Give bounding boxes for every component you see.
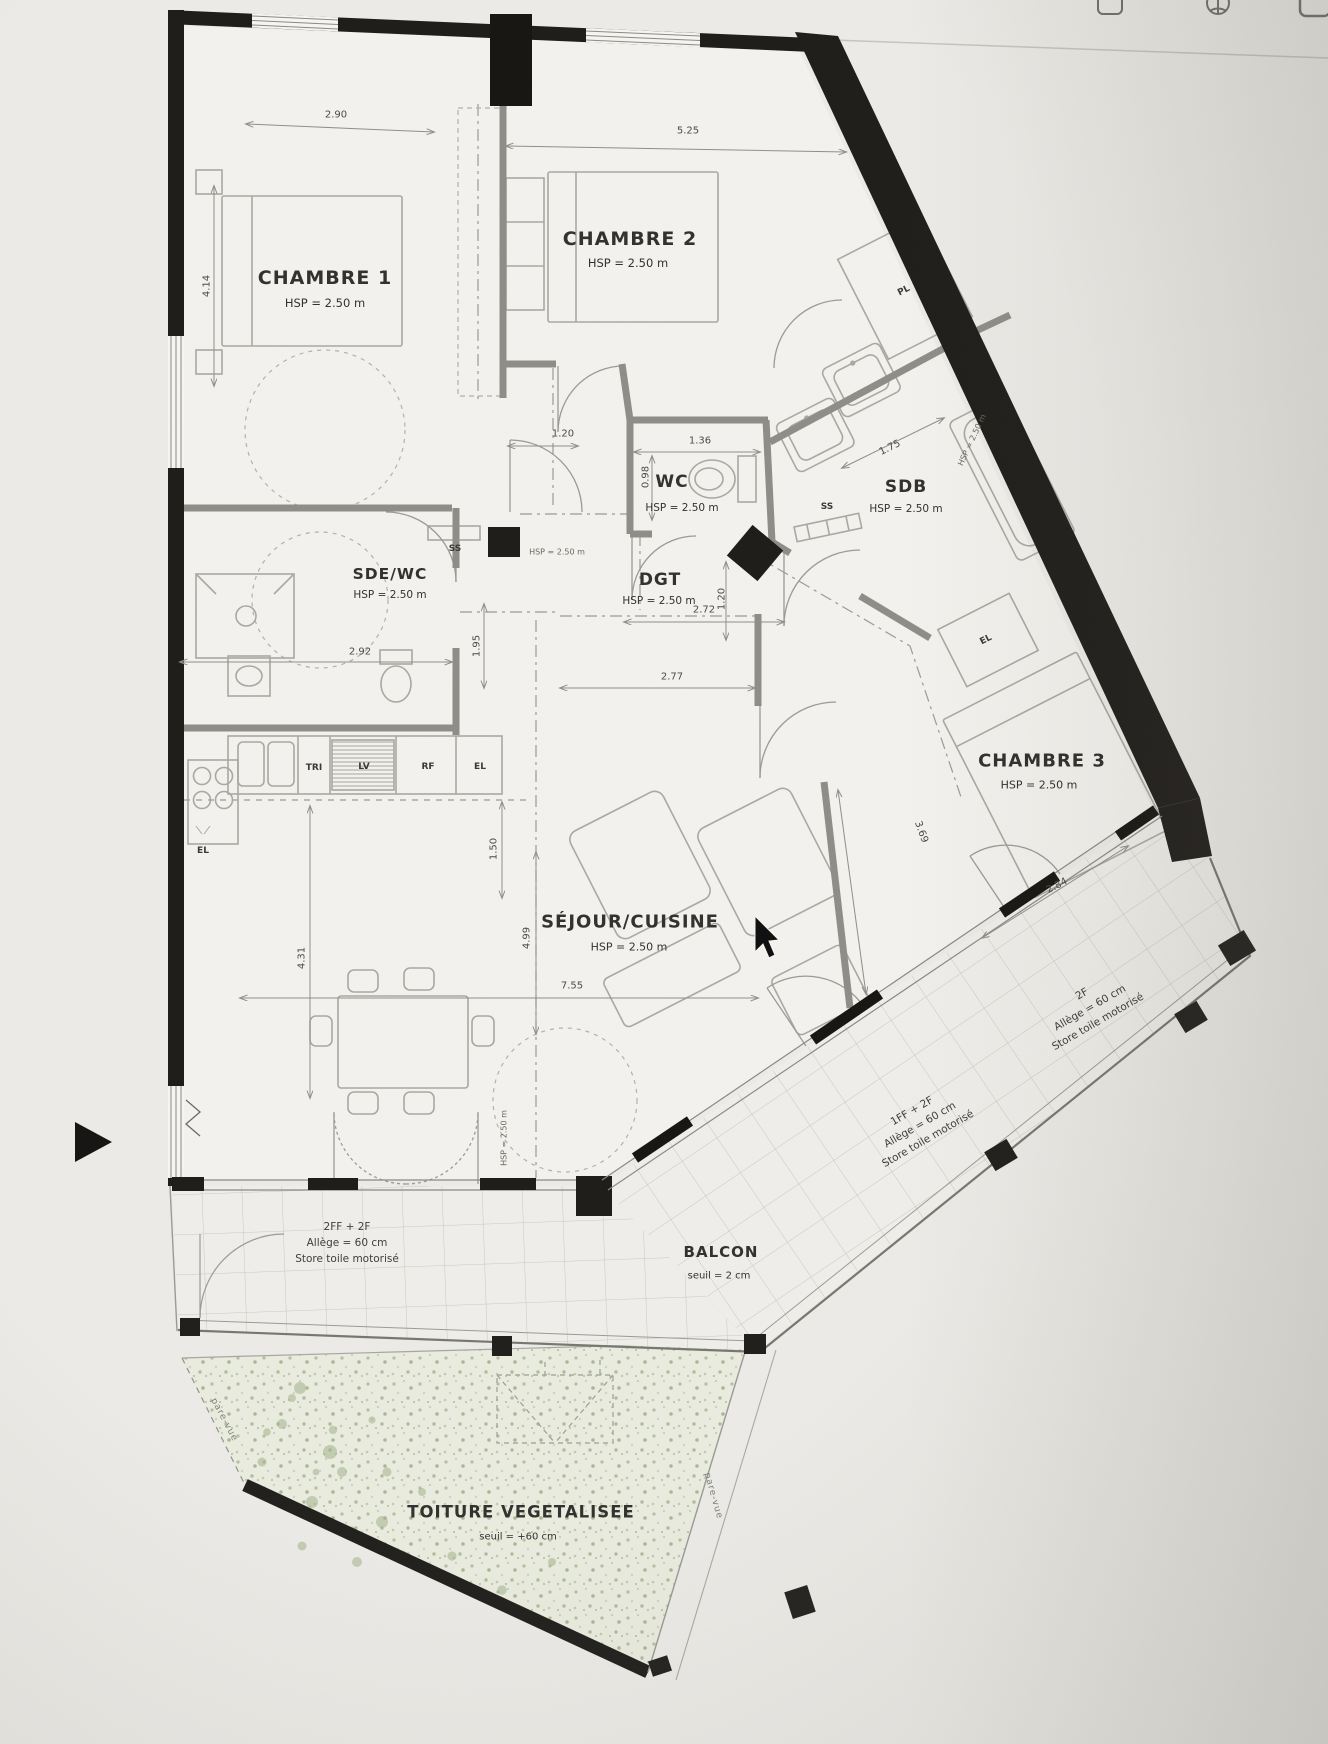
- room-label-sejour: SÉJOUR/CUISINE: [541, 912, 719, 933]
- sde-ss-label: SS: [449, 544, 462, 554]
- room-hsp-dgt: HSP = 2.50 m: [622, 595, 695, 607]
- dim-dgt-width: 2.72: [693, 605, 715, 616]
- kitchen-rf-label: RF: [421, 762, 434, 772]
- dim-sde-width: 2.92: [349, 647, 371, 658]
- floorplan-photo: CHAMBRE 1 HSP = 2.50 m CHAMBRE 2 HSP = 2…: [0, 0, 1328, 1744]
- dim-sejour-left: 4.31: [297, 947, 308, 969]
- room-hsp-sejour: HSP = 2.50 m: [591, 941, 668, 954]
- kitchen-lv-label: LV: [358, 762, 369, 772]
- window-note-south-line1: 2FF + 2F: [295, 1219, 399, 1235]
- dim-wc-width: 1.36: [689, 436, 711, 447]
- room-hsp-chambre2: HSP = 2.50 m: [588, 256, 668, 270]
- window-note-south: 2FF + 2F Allège = 60 cm Store toile moto…: [295, 1219, 399, 1267]
- cooktop-el-label: EL: [197, 846, 209, 856]
- room-label-balcon: BALCON: [684, 1243, 759, 1261]
- dim-dgt-depth: 1.20: [717, 588, 728, 610]
- dim-chambre1-height: 4.14: [202, 275, 213, 297]
- dim-wc-depth: 0.98: [641, 466, 652, 488]
- sdb-ss-label: SS: [821, 502, 834, 512]
- window-note-south-line3: Store toile motorisé: [295, 1251, 399, 1267]
- room-label-toiture: TOITURE VEGETALISEE: [407, 1503, 634, 1522]
- dim-sejour-width: 7.55: [561, 981, 583, 992]
- dim-sde-door: 1.95: [472, 635, 483, 657]
- room-hsp-chambre1: HSP = 2.50 m: [285, 296, 365, 310]
- room-hsp-sde-wc: HSP = 2.50 m: [353, 589, 426, 601]
- kitchen-tri-label: TRI: [306, 763, 322, 773]
- room-label-chambre1: CHAMBRE 1: [258, 267, 392, 289]
- kitchen-el-label: EL: [474, 762, 486, 772]
- dim-kitchen-depth: 1.50: [489, 838, 500, 860]
- room-label-chambre2: CHAMBRE 2: [563, 228, 697, 250]
- room-label-chambre3: CHAMBRE 3: [978, 751, 1106, 772]
- dim-chambre2-width: 5.25: [677, 126, 699, 137]
- room-label-wc: WC: [655, 472, 688, 492]
- dim-sejour-opening: 2.77: [661, 672, 683, 683]
- room-label-sdb: SDB: [885, 477, 927, 497]
- room-hsp-wc: HSP = 2.50 m: [645, 502, 718, 514]
- room-note-toiture: seuil = +60 cm: [479, 1532, 557, 1543]
- room-hsp-chambre3: HSP = 2.50 m: [1001, 779, 1078, 792]
- room-label-dgt: DGT: [639, 570, 681, 590]
- room-hsp-sdb: HSP = 2.50 m: [869, 503, 942, 515]
- room-label-sde-wc: SDE/WC: [353, 565, 428, 583]
- dim-sejour-depth: 4.99: [522, 927, 533, 949]
- room-note-balcon: seuil = 2 cm: [688, 1271, 751, 1282]
- dim-chambre1-door: 1.20: [552, 429, 574, 440]
- dim-chambre1-width: 2.90: [325, 110, 347, 121]
- hsp-small-note-3: HSP = 2.50 m: [500, 1110, 509, 1166]
- window-note-south-line2: Allège = 60 cm: [295, 1235, 399, 1251]
- hsp-small-note-1: HSP = 2.50 m: [529, 548, 585, 557]
